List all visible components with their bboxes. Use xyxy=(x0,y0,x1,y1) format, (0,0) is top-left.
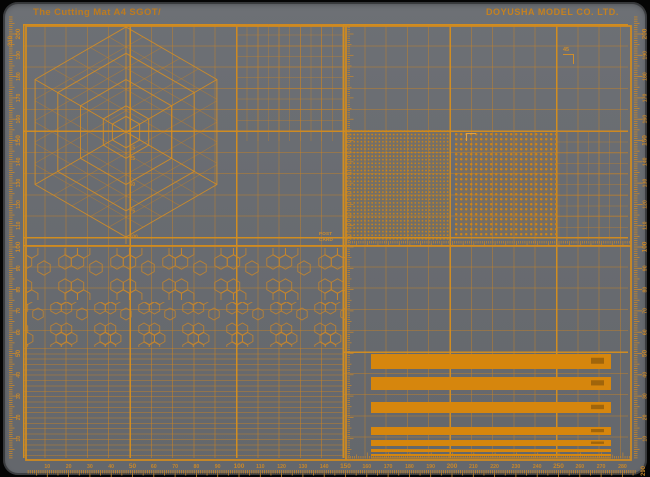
svg-text:100: 100 xyxy=(234,463,245,470)
svg-text:130: 130 xyxy=(299,464,308,470)
svg-text:240: 240 xyxy=(533,464,542,470)
corner-bracket-icon xyxy=(563,54,574,64)
svg-text:120: 120 xyxy=(16,200,22,209)
svg-text:170: 170 xyxy=(643,93,649,102)
svg-text:50: 50 xyxy=(15,350,22,358)
svg-text:160: 160 xyxy=(16,115,22,124)
svg-text:30: 30 xyxy=(643,393,649,399)
svg-text:280: 280 xyxy=(618,464,627,470)
svg-text:20: 20 xyxy=(16,414,22,420)
svg-text:140: 140 xyxy=(643,157,649,166)
svg-text:200: 200 xyxy=(15,28,22,39)
svg-text:110: 110 xyxy=(643,221,649,229)
svg-text:90: 90 xyxy=(16,265,22,271)
brand-title: DOYUSHA MODEL CO. LTD. xyxy=(486,7,619,17)
svg-text:110: 110 xyxy=(16,221,22,229)
svg-text:210: 210 xyxy=(469,464,478,470)
svg-text:40: 40 xyxy=(643,372,649,378)
svg-text:290: 290 xyxy=(641,465,647,476)
svg-text:230: 230 xyxy=(512,464,521,470)
svg-text:10: 10 xyxy=(44,464,50,470)
svg-text:70: 70 xyxy=(16,308,22,314)
svg-text:200: 200 xyxy=(642,28,649,39)
svg-text:50: 50 xyxy=(129,463,137,470)
svg-text:150: 150 xyxy=(340,463,351,470)
svg-text:180: 180 xyxy=(16,72,22,81)
svg-text:160: 160 xyxy=(362,464,371,470)
svg-text:90: 90 xyxy=(215,464,221,470)
svg-text:110: 110 xyxy=(256,464,264,470)
cutting-mat-photo: The Cutting Mat A4 SGOT/ DOYUSHA MODEL C… xyxy=(0,0,650,477)
post-card-label: POST CARD xyxy=(319,231,347,242)
svg-text:260: 260 xyxy=(575,464,584,470)
svg-text:80: 80 xyxy=(643,287,649,293)
svg-text:80: 80 xyxy=(16,287,22,293)
post-card-line2: CARD xyxy=(319,237,347,243)
svg-text:50: 50 xyxy=(642,350,649,358)
svg-text:40: 40 xyxy=(108,464,114,470)
svg-text:20: 20 xyxy=(643,414,649,420)
svg-text:10: 10 xyxy=(643,436,649,442)
product-title: The Cutting Mat A4 SGOT/ xyxy=(33,7,161,18)
svg-text:180: 180 xyxy=(643,72,649,81)
svg-text:190: 190 xyxy=(426,464,435,470)
halfcm-grid-patch xyxy=(236,24,343,141)
dot-texture-coarse xyxy=(455,133,560,238)
svg-text:220: 220 xyxy=(490,464,499,470)
svg-text:60: 60 xyxy=(151,464,157,470)
svg-text:120: 120 xyxy=(643,200,649,209)
svg-text:30: 30 xyxy=(87,464,93,470)
cutting-mat-surface: The Cutting Mat A4 SGOT/ DOYUSHA MODEL C… xyxy=(3,2,647,475)
honeycomb-region xyxy=(23,245,343,348)
svg-text:270: 270 xyxy=(597,464,606,470)
dot-texture-fine xyxy=(346,130,450,240)
size-45-label: 45 xyxy=(563,47,569,53)
line-samples-region xyxy=(343,245,628,458)
svg-text:250: 250 xyxy=(553,463,564,470)
svg-text:90: 90 xyxy=(643,265,649,271)
svg-text:60: 60 xyxy=(643,329,649,335)
svg-text:80: 80 xyxy=(194,464,200,470)
svg-text:10: 10 xyxy=(16,436,22,442)
svg-text:130: 130 xyxy=(643,179,649,188)
svg-text:100: 100 xyxy=(642,241,649,252)
svg-text:210: 210 xyxy=(8,35,14,46)
svg-text:150: 150 xyxy=(642,135,649,146)
halfcm-grid-right xyxy=(556,131,628,240)
svg-text:200: 200 xyxy=(447,463,458,470)
svg-text:70: 70 xyxy=(172,464,178,470)
svg-text:70: 70 xyxy=(643,308,649,314)
svg-text:160: 160 xyxy=(643,115,649,124)
svg-text:140: 140 xyxy=(320,464,329,470)
fine-ruled-region xyxy=(23,348,343,458)
svg-text:130: 130 xyxy=(16,179,22,188)
svg-text:180: 180 xyxy=(405,464,414,470)
svg-text:60: 60 xyxy=(16,329,22,335)
corner-bracket-icon xyxy=(466,133,476,141)
svg-text:170: 170 xyxy=(16,93,22,102)
svg-text:100: 100 xyxy=(15,241,22,252)
svg-text:150: 150 xyxy=(15,135,22,146)
size-45-marker: 45 xyxy=(563,47,574,64)
svg-text:40: 40 xyxy=(16,372,22,378)
svg-text:30: 30 xyxy=(16,393,22,399)
svg-text:190: 190 xyxy=(643,51,649,60)
svg-text:120: 120 xyxy=(277,464,286,470)
svg-text:190: 190 xyxy=(16,51,22,60)
svg-text:20: 20 xyxy=(66,464,72,470)
svg-text:170: 170 xyxy=(384,464,393,470)
svg-text:140: 140 xyxy=(16,157,22,166)
